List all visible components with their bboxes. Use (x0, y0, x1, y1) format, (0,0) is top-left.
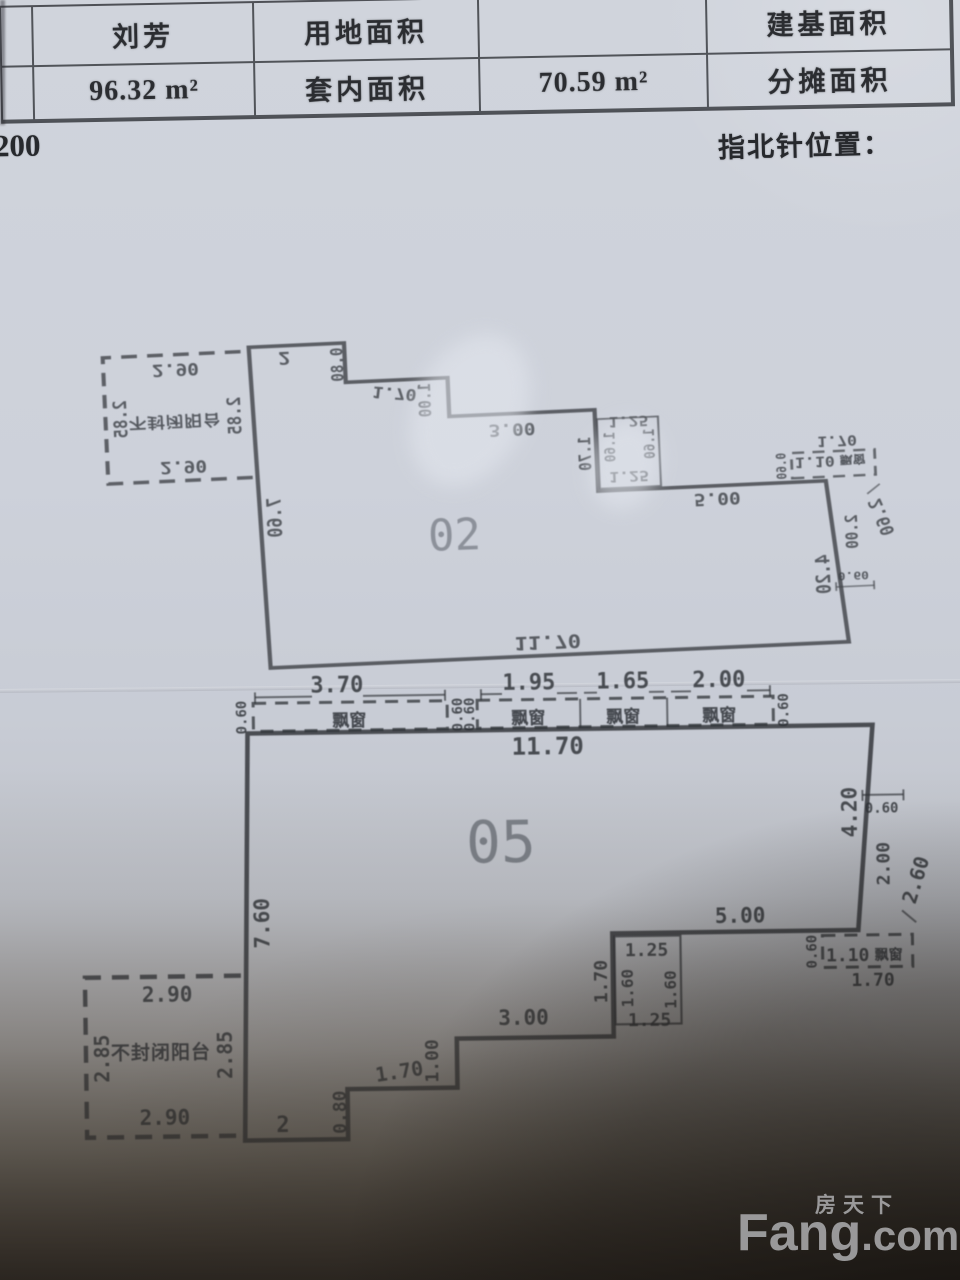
unit-number-05: 05 (465, 807, 536, 876)
fang-watermark-en: Fang.com (737, 1203, 959, 1263)
table-cell-stub-1 (1, 7, 34, 68)
table-cell-land-area-value (479, 0, 708, 59)
compass-position-label: 指北针位置： (718, 122, 893, 165)
paper-edge-shadow (0, 0, 5, 125)
unit-05-plan (57, 664, 944, 1156)
scale-fragment: 200 (0, 128, 41, 165)
table-cell-total-area-value: 96.32 m² (34, 63, 256, 121)
floorplan-photo: 刘芳 用地面积 建基面积 96.32 m² 套内面积 70.59 m² 分摊面积… (0, 0, 960, 1280)
table-cell-inner-area-label: 套内面积 (255, 59, 481, 117)
table-cell-base-area-label: 建基面积 (707, 0, 952, 55)
fang-watermark-en-suffix: .com (861, 1212, 959, 1259)
table-cell-shared-area-label: 分摊面积 (708, 50, 953, 108)
fang-watermark-en-main: Fang (737, 1204, 861, 1262)
table-cell-owner: 刘芳 (33, 3, 255, 67)
table-cell-stub-2 (2, 67, 35, 122)
table-cell-inner-area-value: 70.59 m² (480, 55, 709, 113)
table-cell-land-area-label: 用地面积 (254, 0, 480, 63)
fang-watermark: 房天下 Fang.com (737, 1189, 952, 1274)
area-table: 刘芳 用地面积 建基面积 96.32 m² 套内面积 70.59 m² 分摊面积 (0, 0, 955, 124)
unit-number-02: 02 (427, 509, 482, 562)
unit-02-plan (80, 308, 911, 724)
